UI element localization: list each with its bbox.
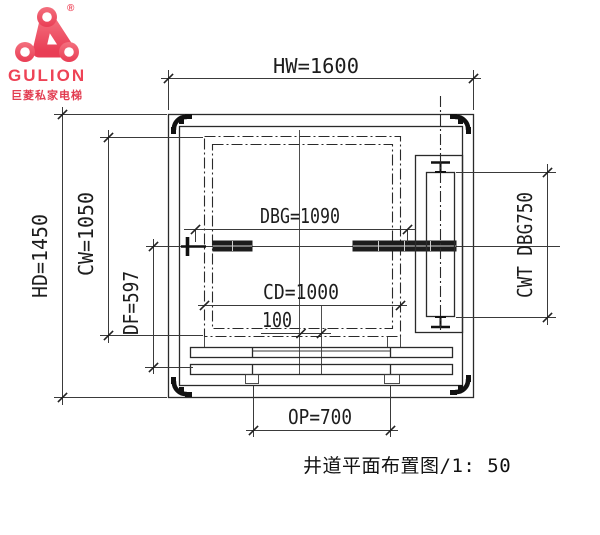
page: ® GULION 巨菱私家电梯 [0, 0, 600, 535]
dim-dbg-label: DBG=1090 [260, 204, 340, 228]
dim-cw-label: CW=1050 [74, 192, 98, 276]
center-lines [146, 130, 560, 375]
dim-offset-label: 100 [262, 308, 292, 332]
dimension-op: OP=700 [246, 386, 398, 437]
shaft-wall [169, 115, 474, 398]
drawing-caption: 井道平面布置图/1: 50 [303, 451, 503, 478]
dim-op-label: OP=700 [288, 405, 352, 429]
dimension-hw: HW=1600 [161, 54, 481, 110]
dim-cwt-label: CWT DBG750 [513, 192, 537, 298]
dim-cd-label: CD=1000 [263, 280, 339, 304]
dimension-cwt: CWT DBG750 [456, 164, 556, 325]
dimension-cd: CD=1000 [198, 280, 407, 310]
counterweight [416, 96, 463, 333]
dimension-dbg: DBG=1090 [184, 204, 416, 242]
dim-hd-label: HD=1450 [28, 214, 52, 298]
dim-hw-label: HW=1600 [273, 54, 359, 78]
dim-df-label: DF=597 [119, 271, 143, 335]
dimension-df: DF=597 [119, 239, 193, 374]
dimension-door-offset: 100 [261, 308, 331, 338]
